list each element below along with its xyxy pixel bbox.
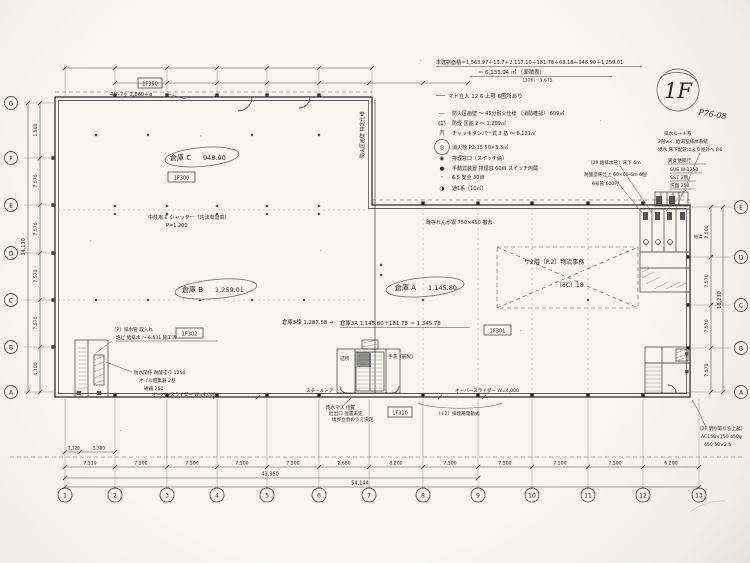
dim-left-3: 7,570 [33,222,39,235]
dim-total-overall: 54,144 [351,481,369,487]
row-grid-bubbles-right: E D C B A [735,201,748,399]
grid-row-b-r: B [739,346,743,353]
dim-left-4: 7,570 [33,269,39,282]
smoke-motor-note: 〔+2〕排煙用電動式 [436,410,480,417]
dim-seg-9: 7,500 [498,461,511,467]
toilet-block [640,192,690,292]
dim-total-inner: 43,360 [261,472,279,478]
grid-row-a: A [9,390,14,397]
room-a-name: 倉庫 A [395,283,416,292]
p-drain-note: 〔P〕排水管 取入れ [112,326,153,333]
grid-col-8: 8 [421,493,425,500]
grid-row-c-r: C [739,303,743,310]
legend-sym-7: ・ [439,175,444,181]
tsumesho-note: 詰所 [340,355,350,362]
rain-note-2: 吐出口 位置未定 [329,410,363,417]
dim-seg-11: 7,500 [608,461,621,467]
dim-right-1: 2,500 [704,225,710,238]
grid-col-4: 4 [215,493,219,500]
dim-left-2: 7,570 [33,174,39,187]
steel-door-note: スチールドア [306,388,334,394]
dim-seg-3: 7,500 [185,461,198,467]
dim-seg-6: 2,680 [337,461,350,467]
grid-row-g: G [9,101,14,108]
interior-grid-lines [58,208,588,395]
dim-seg-2: 7,500 [134,461,147,467]
pipe2f-note: 〔2P 給排水管〕床下 6m [588,159,641,166]
dim-seg-7: 8,200 [389,461,402,467]
dim-sub-2: 5,380 [93,446,105,451]
kyuto-note: 給湯 [694,233,703,240]
grid-row-d: D [9,251,14,258]
mezzanine-label: サ2階〔P.2〕物流事務 [524,258,584,266]
legend-block: ― 防火区画壁 〜 45分耐火仕様 〔消防確認〕 609㎡ (1) 防煙 区画 … [435,110,565,192]
dim-right-total: 18,230 [717,291,723,309]
note-line-4: マド立入 12.6 上限 6箇所あり [448,92,522,100]
dim-seg-8: 7,500 [443,461,456,467]
water-note-3: 磁器 250 [144,385,163,392]
dim-seg-5: 7,500 [286,461,299,467]
mens-note: 男女便所行 [668,157,691,164]
legend-text-7: 6.5 安全 30W [452,174,484,181]
legend-text-4: 消火栓 P2-15 50×3.3㎡ [452,144,508,151]
st-note: S&T 2階 [670,174,689,181]
dim-seg-12: 6,200 [664,461,677,467]
grid-col-1: 1 [63,493,67,500]
grid-col-12: 12 [639,493,647,500]
grid-col-9: 9 [476,493,480,500]
dim-left-5: 7,570 [33,316,39,329]
area-calc-label: 倉庫3A 1,145.80＋181.78 ＝ 1,345.78 [340,319,441,327]
legend-sym-5: ◉ [440,156,445,162]
dim-seg-4: 7,500 [235,461,248,467]
top-tag: 1F350 [142,82,158,88]
room-b-tag: 1F302 [182,332,198,338]
rain-note-3: 境界立会のうえ決定 [332,416,374,423]
dim-left-total: 34,130 [21,238,27,256]
legend-sym-6: ● [440,166,445,172]
overslider-left-note: オーバースライダー W=4,000 [152,391,216,398]
sus-note: SUS W-1250 [670,167,698,173]
grid-col-10: 10 [528,493,536,500]
pipe6-note: 6号管 600吋 [592,180,619,187]
dim-sub-1: 2,120 [68,446,80,451]
grid-row-e-r: E [739,205,743,212]
legend-sym-3: 汽 [439,129,445,137]
grid-row-c: C [9,298,13,305]
spring-note: 湧水 床下配管により屋外へ P.6 [658,146,722,153]
legend-text-8: 通1系〔10㎡〕 [452,185,487,192]
bottom-tag: 1F310 [392,411,408,417]
floor-stamp-label: 1F [664,79,693,103]
grid-row-a-r: A [739,390,744,397]
grid-col-6: 6 [317,493,321,500]
storage-total-label: 倉庫3棟 1,287.58 → [282,318,334,326]
grid-col-5: 5 [265,493,269,500]
firewall-note: 防火区画壁 特定仕様 [359,111,366,158]
water-note-1: 防水関係 耐酸塗り 1250 [134,369,185,376]
note-line-2: ＝ 6,133.94 ㎡ 〔面積表〕 [478,68,545,76]
rain-note-1: 雨水マス 位置 [326,404,355,411]
shutter-note: 中柱用 C シャッター〔内法有効高〕 [148,214,230,221]
grid-row-e: E [9,203,13,210]
legend-sym-8: ◑ [440,186,445,192]
top-wall-doors [213,97,486,399]
overslider-right-note: オーバースライダー W=4,000 [455,387,519,394]
water-note-2: オイル阻集器 2基 [139,377,176,384]
dim-seg-1: 7,510 [83,461,96,467]
grid-row-b: B [9,345,13,352]
notes-block: 本建物面積＝1,563.97＋13.7＋2,117.10＋181.78＋63.1… [436,59,642,100]
bottom-dimensions: 7,510 7,500 7,500 7,500 7,500 2,680 8,20… [10,399,742,489]
page-ref: P76-08 [697,108,727,121]
stair-block-right [645,347,690,393]
legend-text-5: 排煙窓口〔スイッチ納〕 [452,155,507,162]
column-grid-bubbles: 1 2 3 4 5 6 7 8 9 10 11 12 13 [58,488,706,502]
dim-right-4: 7,570 [704,363,710,376]
room-a-area: 1,145.80 [428,284,457,292]
floor-plan-drawing: 7,510 7,500 7,500 7,500 7,500 2,680 8,20… [0,0,750,563]
room-a-tag: 1F301 [490,329,506,335]
scanned-floor-plan-page: 7,510 7,500 7,500 7,500 7,500 2,680 8,20… [0,0,750,563]
stair-block-left [75,340,108,397]
room-c-area: 948.90 [203,154,226,162]
grid-col-3: 3 [165,493,169,500]
dim-left-1: 1,500 [33,123,39,136]
room-c-name: 倉庫 C [170,153,191,162]
grid-col-2: 2 [113,493,117,500]
skylight-note: 〔2F 明り取り窓上部〕 [697,425,745,432]
legend-text-3: チャッキダンパー式 3 基 〜 6,131㎡ [452,130,536,137]
left-dimensions: 1,500 7,570 7,570 7,570 7,570 4,100 34,1… [21,101,55,394]
wc-drain-note: 2階w.c. 給湯室排水系統 [658,138,708,145]
note-line-3: 〔306〕 3,675 [520,78,553,84]
floor-stamp: 1F P76-08 [657,69,727,121]
room-b-area: 1,259.01 [215,286,244,294]
grid-col-7: 7 [367,493,371,500]
legend-text-6: 手動式装置 排煙窓 60W スイッチ内蔵 [452,165,538,172]
room-c-tag: 1F300 [174,176,190,182]
container-note: 4ド-7ヶ 2,860＋α [110,92,153,98]
ac150-note: AC150×150 450φ [701,434,742,440]
stair-block-center [337,340,400,393]
room-b-name: 倉庫 B [182,285,203,294]
vinyl-note: 塩ビ 給排水 〜 6,531 施工済 [116,334,177,341]
shutter-sub-note: P=1,200 [166,223,188,229]
grid-row-f: F [9,156,13,163]
dim-right-2: 7,570 [704,274,710,287]
legend-sym-2: (1) [438,121,446,127]
note-line-1: 本建物面積＝1,563.97＋13.7＋2,117.10＋181.78＋63.1… [436,59,623,66]
dim-seg-10: 7,500 [553,461,566,467]
acid-floor-note: 耐酸塗床仕上 60×60-6m 6個 [584,171,647,178]
annotation-texts: 4ド-7ヶ 2,860＋α 中柱用 C シャッター〔内法有効高〕 P=1,200… [96,92,745,448]
column-marks [51,93,689,396]
grid-col-11: 11 [584,493,592,500]
s450-note: 450 50×2.5 [704,442,731,448]
grid-col-13: 13 [695,493,703,500]
legend-text-1: 防火区画壁 〜 45分耐火仕様 〔消防確認〕 609㎡ [452,110,564,117]
dim-left-6: 4,100 [33,362,39,375]
drain-route-note: 排水ルート系 [664,130,692,137]
brick-note: 既存れんが塀 750×450 撤去 [426,219,492,226]
legend-sym-4: ◎ [440,145,445,151]
tearai-note: 手洗〔鋼製〕 [388,353,416,360]
grid-row-d-r: D [739,255,744,262]
legend-text-2: 防煙 区画 2 〜 1,209㎡ [452,120,506,127]
senmen-note: 洗面 250 [670,182,689,189]
legend-sym-1: ― [439,111,445,117]
mezzanine-outline [497,247,638,308]
building-outline [55,92,690,397]
row-grid-bubbles-left: G F E D C B A [5,97,18,399]
dim-right-3: 7,570 [704,319,710,332]
mezzanine-sub-label: 〔8C〕18 [556,282,584,289]
